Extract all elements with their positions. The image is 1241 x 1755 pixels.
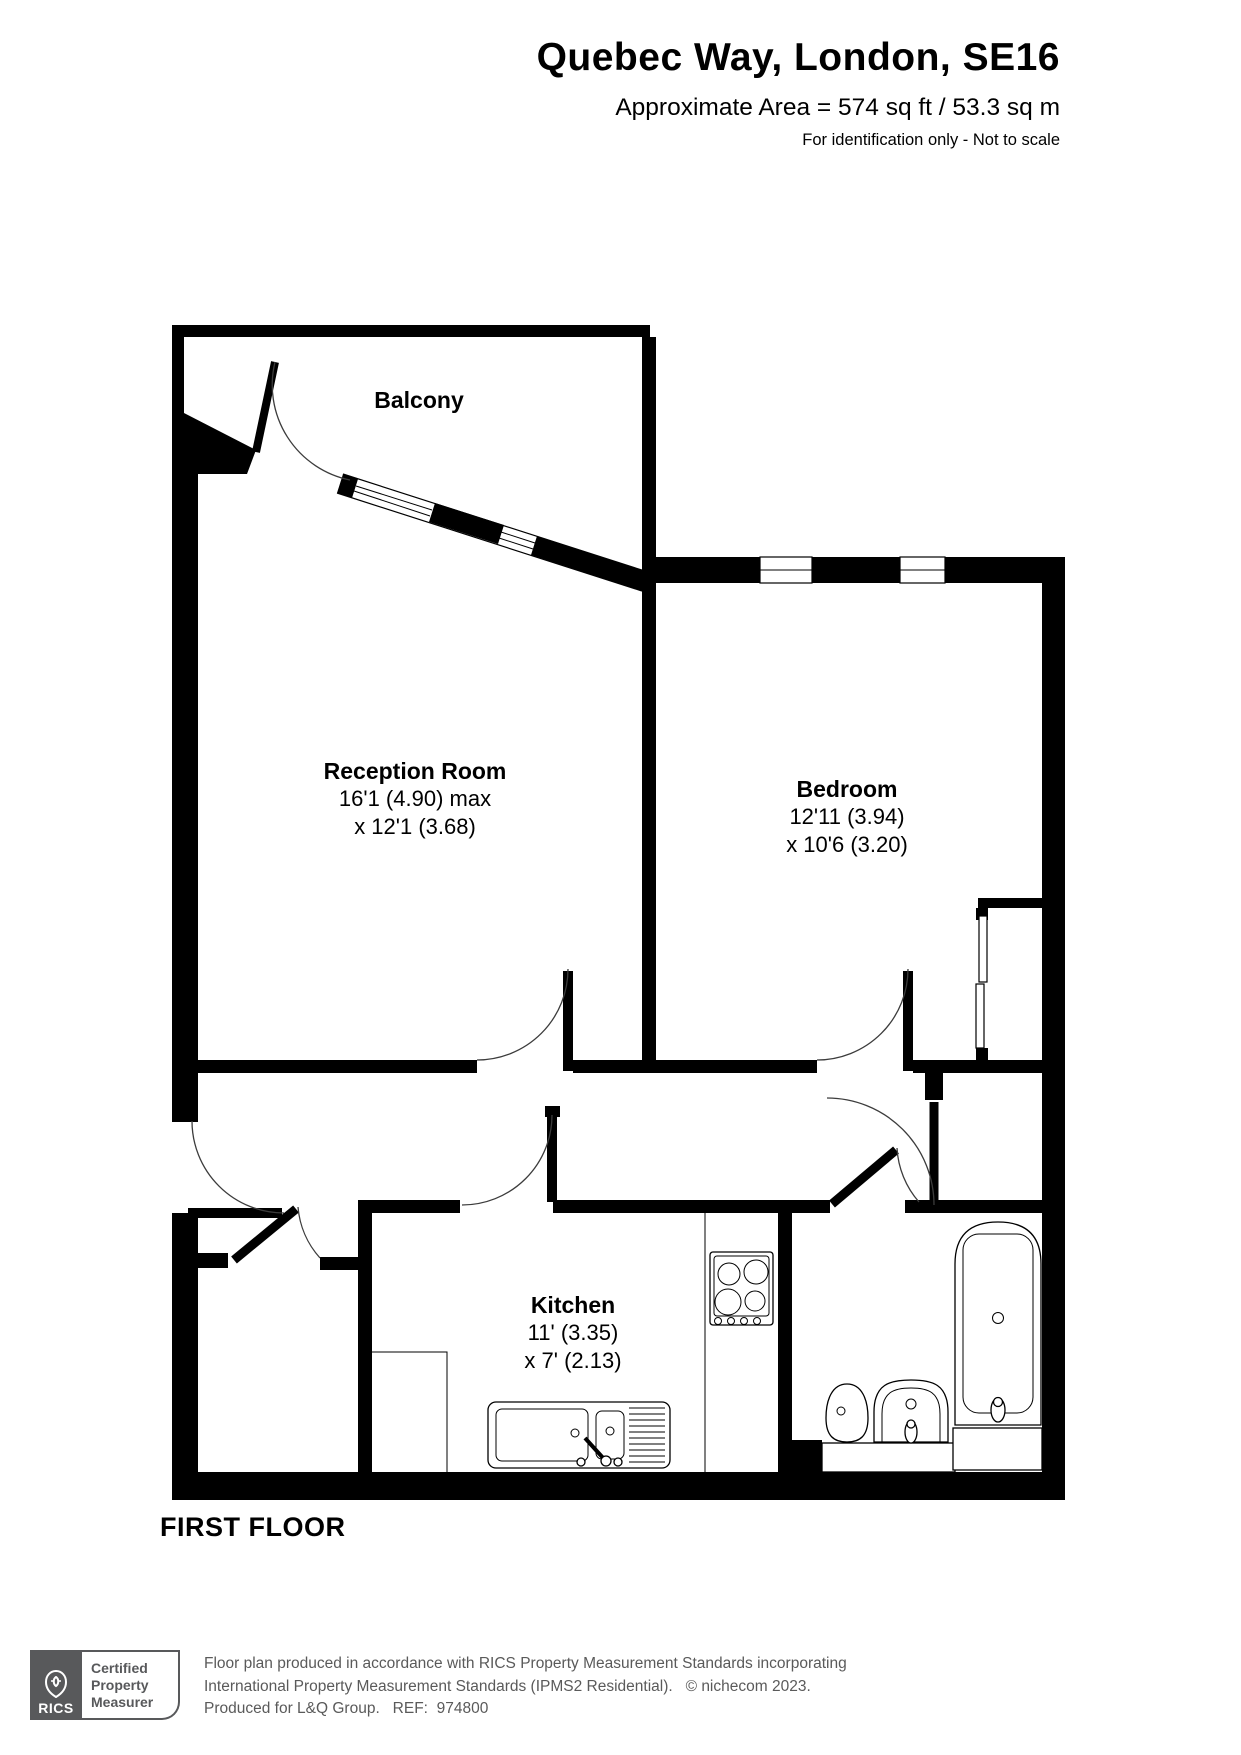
kitchen-door bbox=[462, 1115, 552, 1205]
wardrobe-door bbox=[976, 984, 984, 1048]
room-name: Reception Room bbox=[324, 757, 507, 785]
wall-segment bbox=[553, 1200, 830, 1213]
floor-label: FIRST FLOOR bbox=[160, 1512, 345, 1543]
footer: RICS Certified Property Measurer Floor p… bbox=[30, 1650, 847, 1721]
door-leaf bbox=[832, 1150, 896, 1204]
door-swing-icon bbox=[897, 1148, 919, 1202]
room-name: Bedroom bbox=[786, 775, 908, 803]
wall-segment bbox=[573, 1060, 817, 1073]
rics-logo: RICS bbox=[30, 1650, 82, 1720]
bathroom-door bbox=[832, 1148, 919, 1204]
window-icon bbox=[900, 557, 945, 583]
room-name: Balcony bbox=[374, 386, 463, 414]
badge-line: Measurer bbox=[91, 1694, 178, 1711]
wall-segment bbox=[1042, 557, 1065, 1500]
wall-segment bbox=[172, 472, 198, 1122]
door-swing-icon bbox=[477, 969, 568, 1060]
wall-segment bbox=[642, 337, 656, 1060]
wall-segment bbox=[358, 1213, 372, 1472]
wall-segment bbox=[198, 1060, 477, 1073]
door-swing-icon bbox=[192, 1121, 284, 1213]
wall-segment bbox=[642, 557, 760, 583]
room-dimensions: x 10'6 (3.20) bbox=[786, 831, 908, 859]
room-name: Kitchen bbox=[524, 1291, 621, 1319]
rics-logo-text: RICS bbox=[38, 1701, 73, 1715]
balcony-glazed-screen bbox=[337, 474, 648, 591]
bathtub-icon bbox=[955, 1222, 1041, 1425]
room-label-bedroom: Bedroom 12'11 (3.94) x 10'6 (3.20) bbox=[786, 775, 908, 859]
wall-segment bbox=[429, 503, 504, 544]
wall-segment bbox=[172, 325, 650, 337]
footer-line: Produced for L&Q Group. REF: 974800 bbox=[204, 1698, 847, 1721]
room-dimensions: 11' (3.35) bbox=[524, 1319, 621, 1347]
basin-icon bbox=[874, 1380, 948, 1443]
balcony-door bbox=[256, 362, 350, 480]
wall-segment bbox=[778, 1440, 822, 1472]
certified-measurer-badge: Certified Property Measurer bbox=[82, 1650, 180, 1720]
door-swing-icon bbox=[298, 1207, 320, 1258]
wall-segment bbox=[778, 1213, 792, 1472]
badge-line: Property bbox=[91, 1677, 178, 1694]
room-dimensions: 12'11 (3.94) bbox=[786, 803, 908, 831]
footer-line: Floor plan produced in accordance with R… bbox=[204, 1653, 847, 1676]
room-label-reception: Reception Room 16'1 (4.90) max x 12'1 (3… bbox=[324, 757, 507, 841]
hob-icon bbox=[710, 1252, 773, 1325]
wall-segment bbox=[172, 337, 184, 417]
room-label-balcony: Balcony bbox=[374, 386, 463, 414]
room-dimensions: x 12'1 (3.68) bbox=[324, 813, 507, 841]
room-dimensions: x 7' (2.13) bbox=[524, 1347, 621, 1375]
wall-segment bbox=[358, 1200, 460, 1213]
bedroom-door bbox=[817, 969, 908, 1071]
window-icon bbox=[760, 557, 812, 583]
wall-segment bbox=[913, 1060, 1065, 1073]
floorplan-drawing bbox=[0, 0, 1241, 1755]
wall-segment bbox=[172, 1213, 198, 1500]
footer-disclaimer: Floor plan produced in accordance with R… bbox=[204, 1650, 847, 1721]
wardrobe-door bbox=[979, 916, 987, 982]
reception-door bbox=[477, 969, 568, 1071]
footer-line: International Property Measurement Stand… bbox=[204, 1676, 847, 1699]
door-swing-icon bbox=[462, 1115, 552, 1205]
badge-line: Certified bbox=[91, 1660, 178, 1677]
wall-segment bbox=[320, 1257, 372, 1270]
wall-segment bbox=[198, 1253, 228, 1268]
wall-segment bbox=[812, 557, 900, 583]
wall-segment bbox=[976, 1048, 988, 1060]
wardrobe-icon bbox=[976, 916, 987, 1048]
wall-segment bbox=[531, 536, 648, 591]
wall-segment bbox=[905, 1200, 1042, 1213]
toilet-icon bbox=[826, 1384, 868, 1442]
wall-segment bbox=[978, 898, 1042, 908]
door-swing-icon bbox=[272, 362, 350, 480]
kitchen-sink-icon bbox=[488, 1402, 670, 1468]
bathroom-plinth bbox=[822, 1443, 955, 1472]
door-swing-icon bbox=[817, 969, 908, 1060]
wall-segment bbox=[172, 1472, 1065, 1500]
wall-segment bbox=[172, 413, 256, 474]
room-dimensions: 16'1 (4.90) max bbox=[324, 785, 507, 813]
rics-lion-icon bbox=[41, 1667, 71, 1701]
entrance-door bbox=[188, 1121, 284, 1213]
room-label-kitchen: Kitchen 11' (3.35) x 7' (2.13) bbox=[524, 1291, 621, 1375]
wall-segment bbox=[925, 1073, 943, 1100]
bathroom-plinth bbox=[953, 1428, 1042, 1470]
wall-segment bbox=[945, 557, 1065, 583]
